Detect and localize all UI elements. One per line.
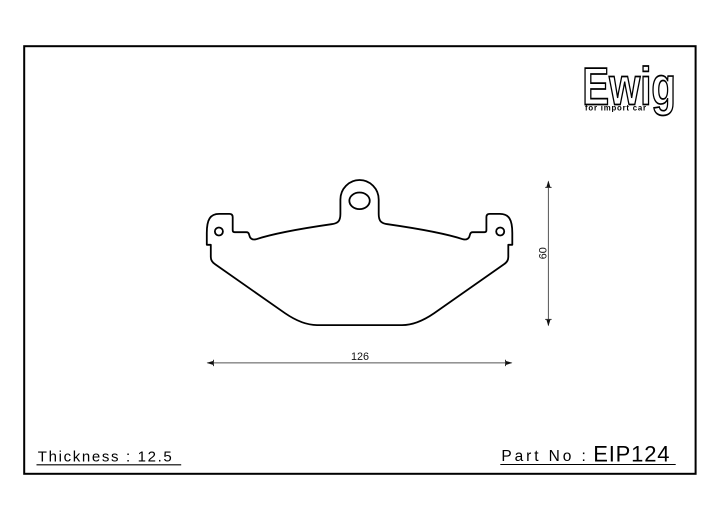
svg-text:for import car: for import car (585, 104, 647, 113)
svg-text:126: 126 (351, 351, 369, 363)
svg-text:60: 60 (537, 247, 549, 259)
svg-text:EIP124: EIP124 (593, 442, 670, 467)
svg-text:Part No :: Part No : (501, 448, 588, 465)
svg-text:Thickness : 12.5: Thickness : 12.5 (38, 448, 174, 465)
